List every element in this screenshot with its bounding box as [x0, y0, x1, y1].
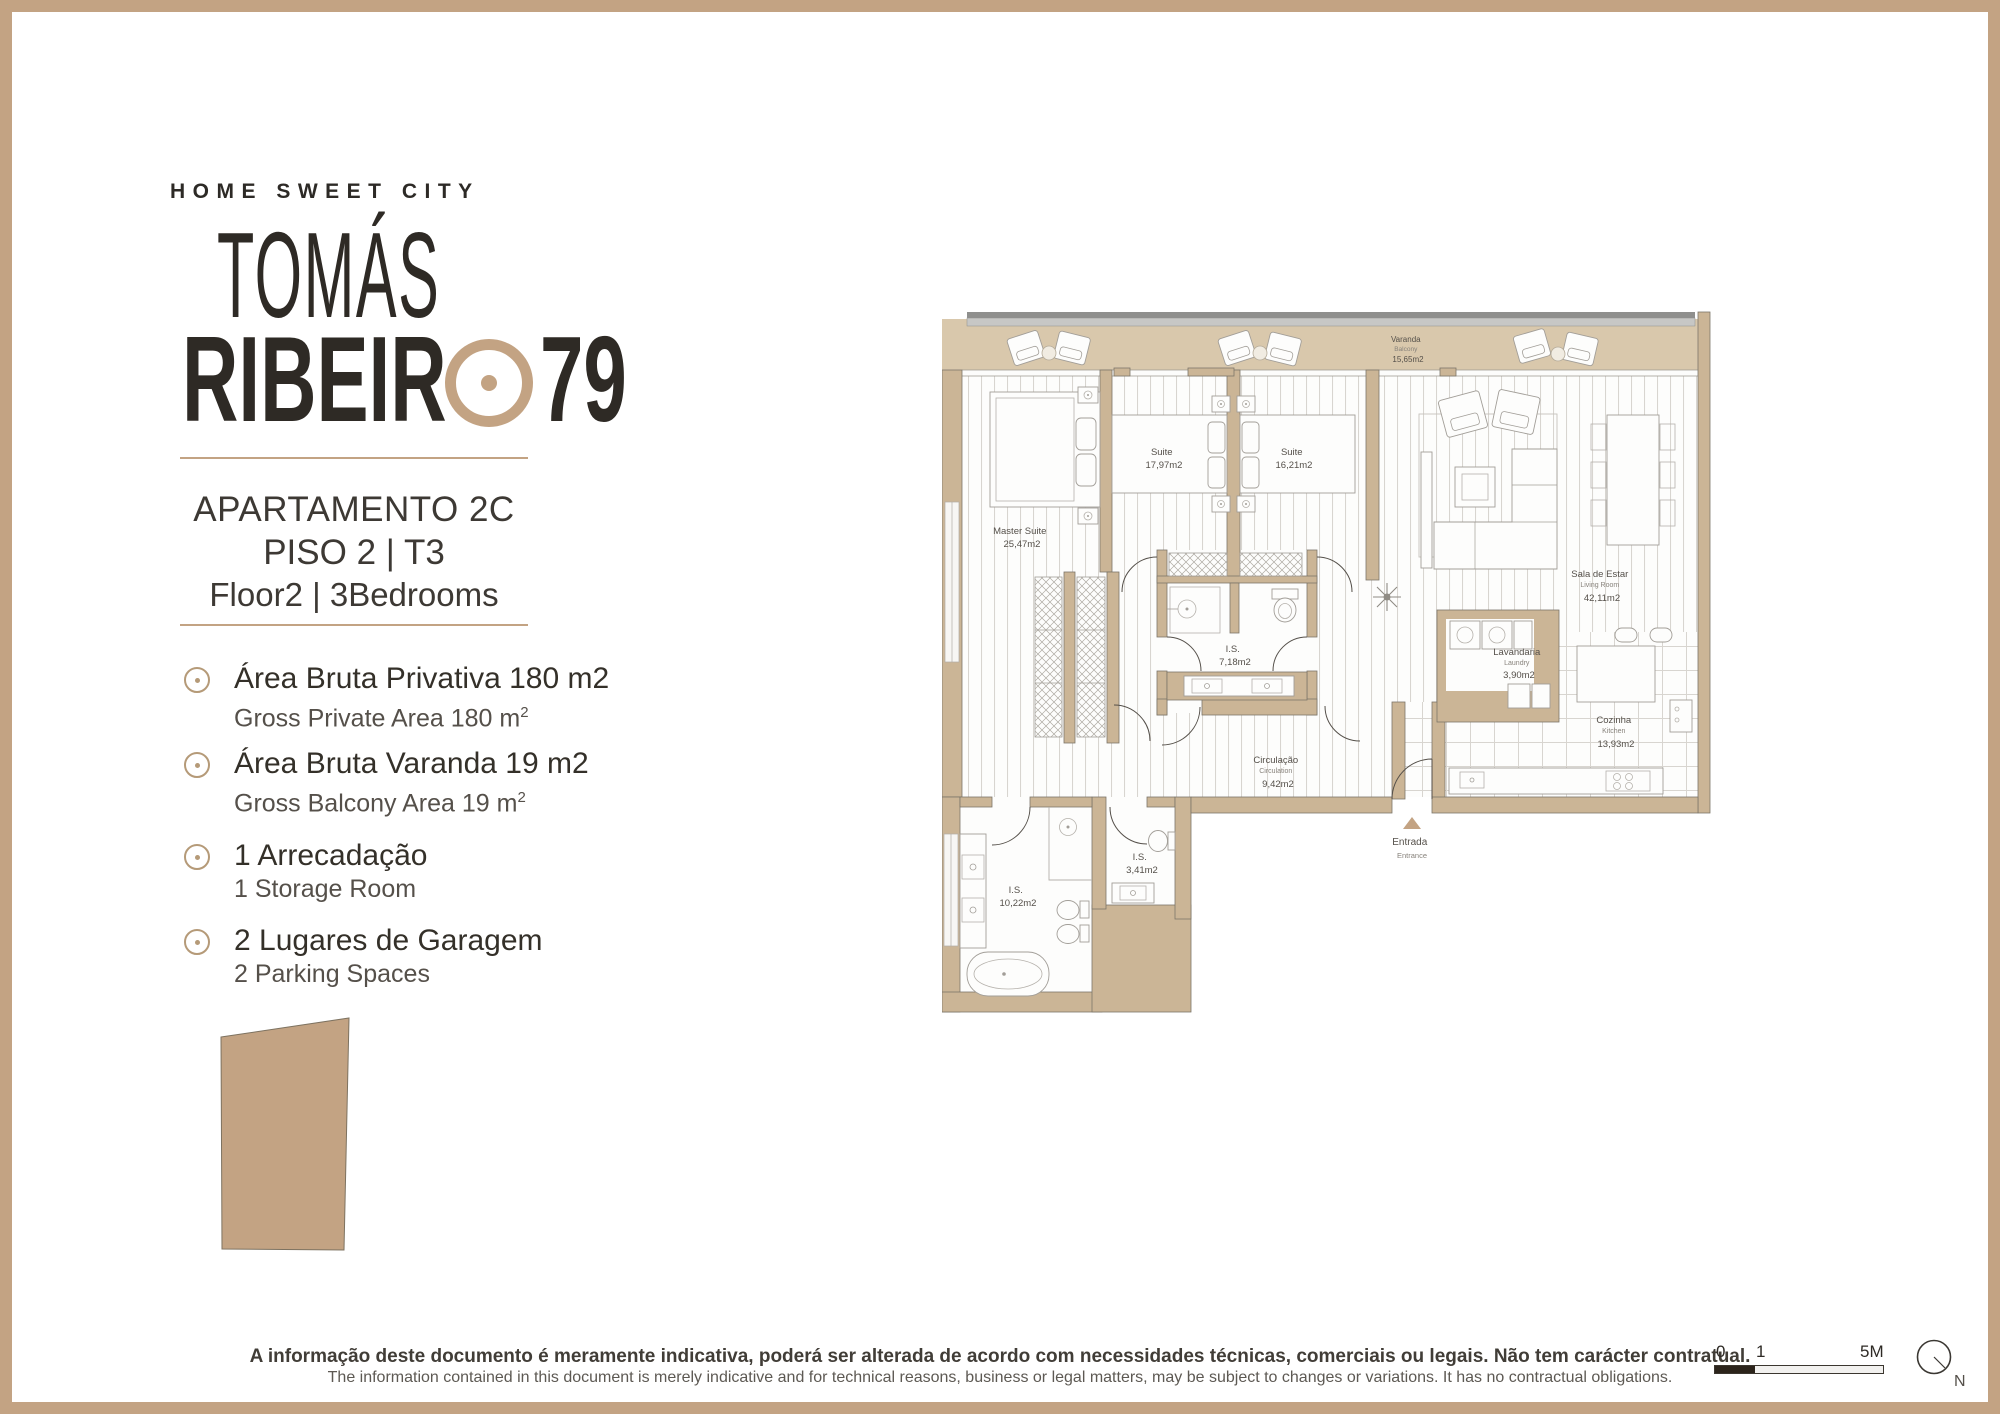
appliance [1532, 684, 1550, 708]
pillow [1242, 457, 1259, 488]
bidet [1057, 925, 1079, 944]
compass-north-label: N [1954, 1373, 1966, 1390]
feature-en-sup: 2 [520, 704, 528, 721]
disclaimer-pt: A informação deste documento é meramente… [12, 1346, 1988, 1368]
wardrobe [1240, 553, 1302, 576]
brochure-page: HOME SWEET CITY TOMÁS RIBEIR 79 APARTAME… [0, 0, 2000, 1414]
plant-icon [1373, 583, 1401, 611]
pillow [1076, 418, 1096, 450]
room-label-entrada: Entrada Entrance [1392, 832, 1431, 860]
coffee-table [1455, 467, 1495, 507]
pillow [1076, 454, 1096, 486]
apartment-name: APARTAMENTO 2C [152, 488, 556, 531]
stool [1615, 628, 1637, 642]
brand-logo-dot [481, 375, 497, 391]
scale-bar-filled [1715, 1366, 1755, 1373]
feature-en-text: Gross Balcony Area 19 m [234, 789, 517, 817]
feature-pt: 1 Arrecadação [234, 839, 664, 873]
brand-tagline: HOME SWEET CITY [170, 180, 480, 204]
bidet-tank [1080, 925, 1089, 942]
feature-pt: Área Bruta Privativa 180 m2 [234, 662, 664, 696]
feature-en: 2 Parking Spaces [234, 958, 664, 991]
laundry-sink [1514, 621, 1532, 649]
scale-bar: 0 1 5M [1714, 1342, 1894, 1382]
scale-bar-track [1714, 1365, 1884, 1374]
apartment-heading: APARTAMENTO 2C PISO 2 | T3 Floor2 | 3Bed… [152, 488, 556, 616]
disclaimer-en: The information contained in this docume… [12, 1369, 1988, 1387]
kitchen-island [1577, 646, 1655, 702]
feature-pt: 2 Lugares de Garagem [234, 924, 664, 958]
feature-en-text: Gross Private Area 180 m [234, 704, 520, 732]
entrance-arrow-icon [1403, 817, 1421, 829]
side-table-icon [1253, 346, 1267, 360]
stool [1650, 628, 1672, 642]
feature-en: 1 Storage Room [234, 873, 664, 906]
pillow [1208, 422, 1225, 453]
floor-plan: Varanda Balcony 15,65m2 Master Suite 25,… [942, 310, 1712, 1025]
room-label-cozinha: Cozinha Kitchen 13,93m2 [1596, 710, 1635, 750]
feature-en: Gross Private Area 180 m2 [234, 696, 664, 735]
toilet-tank [1080, 901, 1089, 918]
bullet-circle-icon [184, 667, 210, 693]
appliance [1508, 684, 1530, 708]
compass-icon: N [1912, 1336, 1976, 1390]
room-label-suite2: Suite 16,21m2 [1276, 442, 1313, 471]
bullet-circle-icon [184, 752, 210, 778]
toilet-tank [1272, 589, 1298, 599]
scale-bar-empty [1755, 1366, 1883, 1373]
room-label-varanda: Varanda Balcony 15,65m2 [1391, 329, 1425, 364]
brand-title-line2-right: 79 [540, 318, 627, 440]
side-table-icon [1042, 346, 1056, 360]
apartment-floor-pt: PISO 2 | T3 [152, 531, 556, 574]
wardrobe [1077, 577, 1105, 737]
feature-parking: 2 Lugares de Garagem 2 Parking Spaces [184, 924, 664, 991]
pillow [1242, 422, 1259, 453]
scale-tick-0: 0 [1716, 1342, 1725, 1362]
pillow [1208, 457, 1225, 488]
bullet-circle-icon [184, 844, 210, 870]
tv-cabinet [1421, 452, 1432, 568]
brand-title-line2-left: RIBEIR [182, 318, 447, 440]
vanity [960, 834, 986, 948]
brand-logo-ring-icon [445, 339, 533, 427]
building-footprint-shape [217, 1015, 352, 1257]
divider-bottom [180, 624, 528, 626]
washer [1450, 621, 1480, 649]
armchair-icon [1492, 389, 1541, 435]
feature-storage: 1 Arrecadação 1 Storage Room [184, 839, 664, 906]
feature-balcony-area: Área Bruta Varanda 19 m2 Gross Balcony A… [184, 747, 664, 820]
window-band [962, 370, 1698, 376]
room-label-suite1: Suite 17,97m2 [1146, 442, 1183, 471]
toilet [1057, 901, 1079, 920]
scale-tick-5m: 5M [1860, 1342, 1884, 1362]
fridge [1670, 700, 1692, 732]
dryer [1482, 621, 1512, 649]
divider-top [180, 457, 528, 459]
wardrobe [1169, 553, 1227, 576]
toilet-tank [1168, 832, 1175, 850]
bullet-circle-icon [184, 929, 210, 955]
feature-en-sup: 2 [517, 789, 525, 806]
feature-pt: Área Bruta Varanda 19 m2 [234, 747, 664, 781]
side-table-icon [1551, 347, 1565, 361]
dining-table [1607, 415, 1659, 545]
feature-private-area: Área Bruta Privativa 180 m2 Gross Privat… [184, 662, 664, 735]
scale-tick-1: 1 [1756, 1342, 1765, 1362]
apartment-floor-en: Floor2 | 3Bedrooms [152, 574, 556, 616]
feature-en: Gross Balcony Area 19 m2 [234, 781, 664, 820]
wardrobe [1035, 577, 1062, 737]
